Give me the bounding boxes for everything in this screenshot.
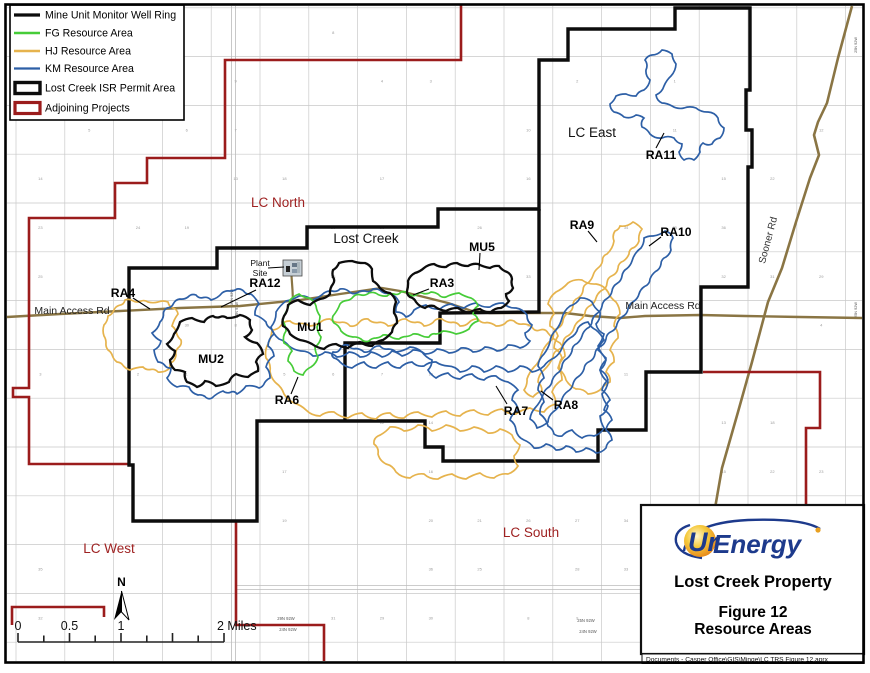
svg-text:32: 32: [38, 615, 43, 620]
svg-text:1: 1: [118, 619, 125, 633]
svg-text:Site: Site: [253, 268, 268, 278]
svg-text:RA9: RA9: [570, 218, 595, 232]
svg-text:Plant: Plant: [250, 258, 270, 268]
svg-text:RA11: RA11: [646, 148, 677, 162]
svg-text:0: 0: [15, 619, 22, 633]
svg-text:LC South: LC South: [503, 525, 559, 540]
svg-text:10: 10: [526, 127, 531, 132]
svg-text:29N 92W: 29N 92W: [277, 616, 295, 621]
svg-text:25: 25: [477, 567, 482, 572]
svg-text:34: 34: [624, 518, 629, 523]
svg-text:Main Access Rd: Main Access Rd: [34, 305, 109, 317]
svg-text:RA8: RA8: [554, 398, 579, 412]
svg-text:19: 19: [282, 518, 287, 523]
svg-text:RA10: RA10: [660, 225, 691, 239]
svg-text:16: 16: [526, 176, 531, 181]
svg-text:31: 31: [770, 274, 775, 279]
svg-text:Energy: Energy: [713, 529, 803, 559]
svg-text:21: 21: [477, 518, 482, 523]
svg-text:MU5: MU5: [469, 240, 495, 254]
svg-text:36: 36: [721, 225, 726, 230]
svg-text:LC West: LC West: [83, 541, 135, 556]
svg-text:24N 92W: 24N 92W: [579, 629, 597, 634]
svg-text:17: 17: [282, 469, 287, 474]
svg-text:30: 30: [185, 323, 190, 328]
svg-text:Main Access Rd: Main Access Rd: [625, 300, 700, 312]
svg-text:0.5: 0.5: [61, 619, 78, 633]
svg-text:25N 92W: 25N 92W: [854, 302, 858, 318]
svg-text:RA6: RA6: [275, 393, 300, 407]
svg-text:32: 32: [721, 274, 726, 279]
svg-text:33: 33: [526, 274, 531, 279]
svg-text:35: 35: [38, 567, 43, 572]
svg-text:FG Resource Area: FG Resource Area: [45, 28, 133, 40]
svg-text:KM Resource Area: KM Resource Area: [45, 63, 134, 75]
svg-text:33: 33: [624, 567, 629, 572]
svg-text:13: 13: [233, 176, 238, 181]
svg-text:RA7: RA7: [504, 404, 529, 418]
svg-text:14: 14: [429, 420, 434, 425]
svg-text:LC East: LC East: [568, 125, 616, 140]
svg-text:28: 28: [575, 567, 580, 572]
svg-text:26: 26: [526, 518, 531, 523]
svg-text:29: 29: [380, 615, 385, 620]
svg-text:12: 12: [819, 127, 824, 132]
svg-text:24N 92W: 24N 92W: [279, 627, 297, 632]
svg-text:15: 15: [721, 176, 726, 181]
svg-text:RA4: RA4: [111, 286, 136, 300]
svg-text:24: 24: [136, 225, 141, 230]
svg-text:HJ Resource Area: HJ Resource Area: [45, 46, 131, 58]
svg-text:19: 19: [185, 225, 190, 230]
svg-text:Lost Creek Property: Lost Creek Property: [674, 573, 833, 591]
svg-text:Mine Unit Monitor Well Ring: Mine Unit Monitor Well Ring: [45, 10, 176, 22]
svg-text:27: 27: [575, 518, 580, 523]
svg-text:18: 18: [282, 176, 287, 181]
svg-text:Adjoining Projects: Adjoining Projects: [45, 103, 130, 115]
svg-text:13: 13: [721, 420, 726, 425]
svg-text:36: 36: [429, 567, 434, 572]
svg-text:18: 18: [770, 420, 775, 425]
svg-text:Resource Areas: Resource Areas: [694, 621, 811, 638]
svg-text:20: 20: [429, 518, 434, 523]
svg-text:25N 92W: 25N 92W: [577, 618, 595, 623]
svg-text:Lost Creek: Lost Creek: [333, 231, 399, 246]
svg-text:23: 23: [819, 469, 824, 474]
svg-text:25N 92W: 25N 92W: [854, 37, 858, 53]
svg-text:MU1: MU1: [297, 320, 323, 334]
svg-text:Figure 12: Figure 12: [719, 604, 788, 621]
svg-text:30: 30: [429, 615, 434, 620]
svg-text:23: 23: [38, 225, 43, 230]
svg-text:16: 16: [429, 469, 434, 474]
svg-text:29: 29: [819, 274, 824, 279]
svg-text:RA3: RA3: [430, 276, 455, 290]
svg-text:2 Miles: 2 Miles: [217, 619, 257, 633]
svg-text:14: 14: [38, 176, 43, 181]
svg-text:LC North: LC North: [251, 195, 305, 210]
svg-text:22: 22: [770, 176, 775, 181]
svg-text:25: 25: [38, 274, 43, 279]
svg-text:26: 26: [477, 225, 482, 230]
svg-text:MU2: MU2: [198, 352, 224, 366]
svg-text:N: N: [117, 575, 126, 589]
svg-text:22: 22: [770, 469, 775, 474]
svg-text:17: 17: [380, 176, 385, 181]
svg-text:31: 31: [331, 615, 336, 620]
svg-text:RA12: RA12: [249, 276, 280, 290]
svg-text:Lost Creek ISR Permit Area: Lost Creek ISR Permit Area: [45, 83, 175, 95]
